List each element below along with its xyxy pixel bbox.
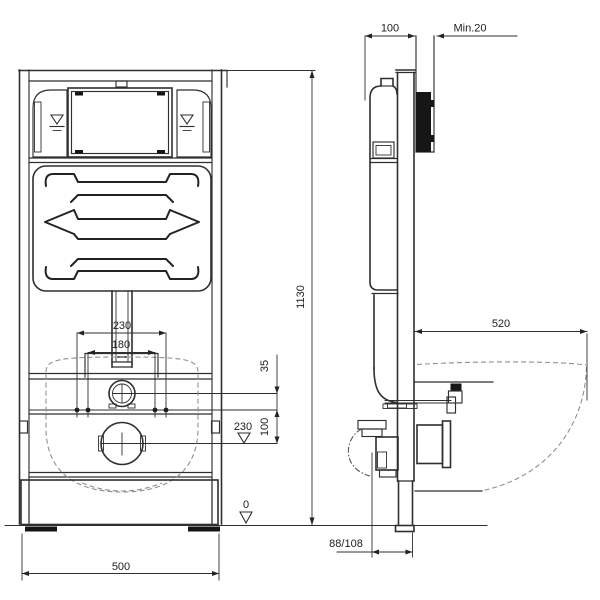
flush-plate-section xyxy=(416,92,431,152)
corner-mark-icon xyxy=(75,150,83,154)
frame-rails xyxy=(20,70,222,524)
base-box xyxy=(21,480,220,532)
outlet-coupling xyxy=(417,421,451,468)
cistern-ribs xyxy=(45,174,199,279)
dim-label-bolt-outer: 230 xyxy=(113,320,131,332)
dim-label-outlet-distance: 88/108 xyxy=(329,538,363,550)
bowl-fixing-assembly xyxy=(383,382,493,413)
dim-label-frame-depth: 100 xyxy=(381,23,399,35)
foot-plate-left xyxy=(25,527,57,532)
window-bracket-left xyxy=(33,90,67,157)
dim-label-outlet-offset: 100 xyxy=(259,418,271,436)
dim-label-inlet-offset: 35 xyxy=(259,360,271,372)
wall-section xyxy=(416,36,435,152)
dim-label-frame-height: 1130 xyxy=(295,285,307,309)
dim-frame-height: 1130 xyxy=(227,71,315,526)
level-marker-floor: 0 xyxy=(240,499,252,523)
hanger-tab xyxy=(116,81,127,87)
waste-elbow xyxy=(348,421,398,478)
foot-plate-right xyxy=(188,527,220,532)
dimensions: 230 180 35 100 230 0 xyxy=(22,23,587,581)
corner-mark-icon xyxy=(157,150,165,154)
corner-mark-icon xyxy=(157,92,165,96)
inspection-window xyxy=(68,88,172,157)
dim-vertical-chain: 35 100 xyxy=(259,355,280,444)
wc-frame-drawing: 230 180 35 100 230 0 xyxy=(0,0,600,600)
window-bracket-right xyxy=(177,90,211,157)
rail-clamp-left xyxy=(20,421,28,433)
cistern-front xyxy=(33,166,211,291)
level-triangle-icon xyxy=(240,512,252,523)
water-level-icon xyxy=(50,115,64,131)
dim-frame-width: 500 xyxy=(22,534,219,580)
inlet-connection xyxy=(109,381,277,409)
technical-drawing-page: 230 180 35 100 230 0 xyxy=(0,0,600,600)
dim-label-bowl-length: 520 xyxy=(492,318,510,330)
level-marker-outlet: 230 xyxy=(234,421,252,443)
dim-bowl-length: 520 xyxy=(415,318,587,400)
water-level-icon xyxy=(180,115,194,131)
dim-label-frame-width: 500 xyxy=(112,561,130,573)
corner-mark-icon xyxy=(75,92,83,96)
cistern-side xyxy=(370,79,397,291)
dim-label-bolt-inner: 180 xyxy=(112,339,130,351)
level-label-outlet: 230 xyxy=(234,421,252,433)
rail-clamp-right xyxy=(212,421,220,433)
bowl-outline-front xyxy=(46,357,198,492)
dim-label-wall-min: Min.20 xyxy=(453,23,486,35)
dim-outlet-distance: 88/108 xyxy=(329,453,412,557)
flush-pipe-side xyxy=(372,294,407,409)
level-label-floor: 0 xyxy=(243,499,249,511)
dim-wall-min: Min.20 xyxy=(437,23,517,39)
side-foot-plate xyxy=(396,526,415,532)
front-view xyxy=(19,70,277,532)
level-triangle-icon xyxy=(238,433,250,443)
threaded-rod xyxy=(451,384,462,392)
side-view xyxy=(348,36,586,532)
top-crossbar xyxy=(19,71,227,88)
